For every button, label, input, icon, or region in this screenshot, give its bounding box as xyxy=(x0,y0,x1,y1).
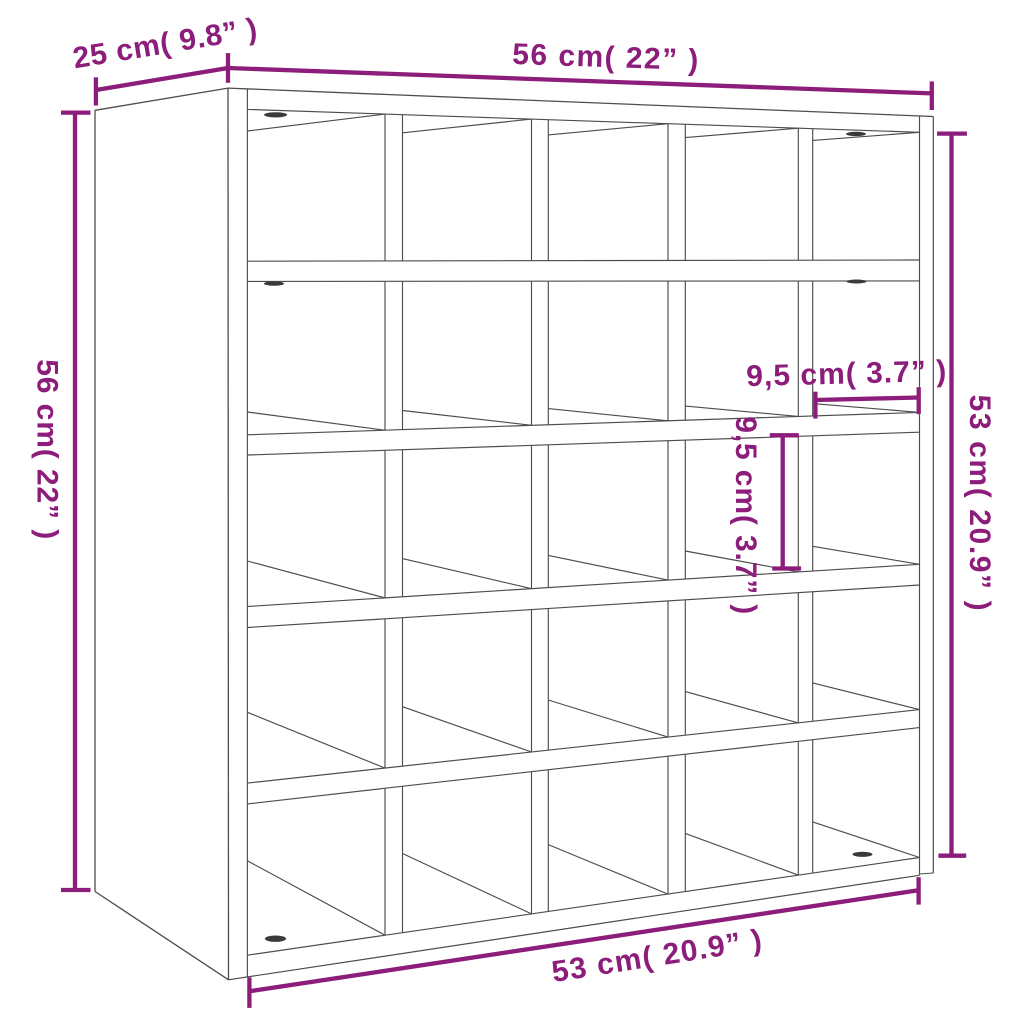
svg-text:53 cm( 20.9” ): 53 cm( 20.9” ) xyxy=(963,395,996,611)
svg-text:9,5 cm( 3.7” ): 9,5 cm( 3.7” ) xyxy=(729,416,762,614)
svg-text:56 cm( 22” ): 56 cm( 22” ) xyxy=(512,38,699,77)
svg-text:56 cm( 22” ): 56 cm( 22” ) xyxy=(31,359,64,539)
svg-text:9,5 cm( 3.7” ): 9,5 cm( 3.7” ) xyxy=(746,355,947,393)
